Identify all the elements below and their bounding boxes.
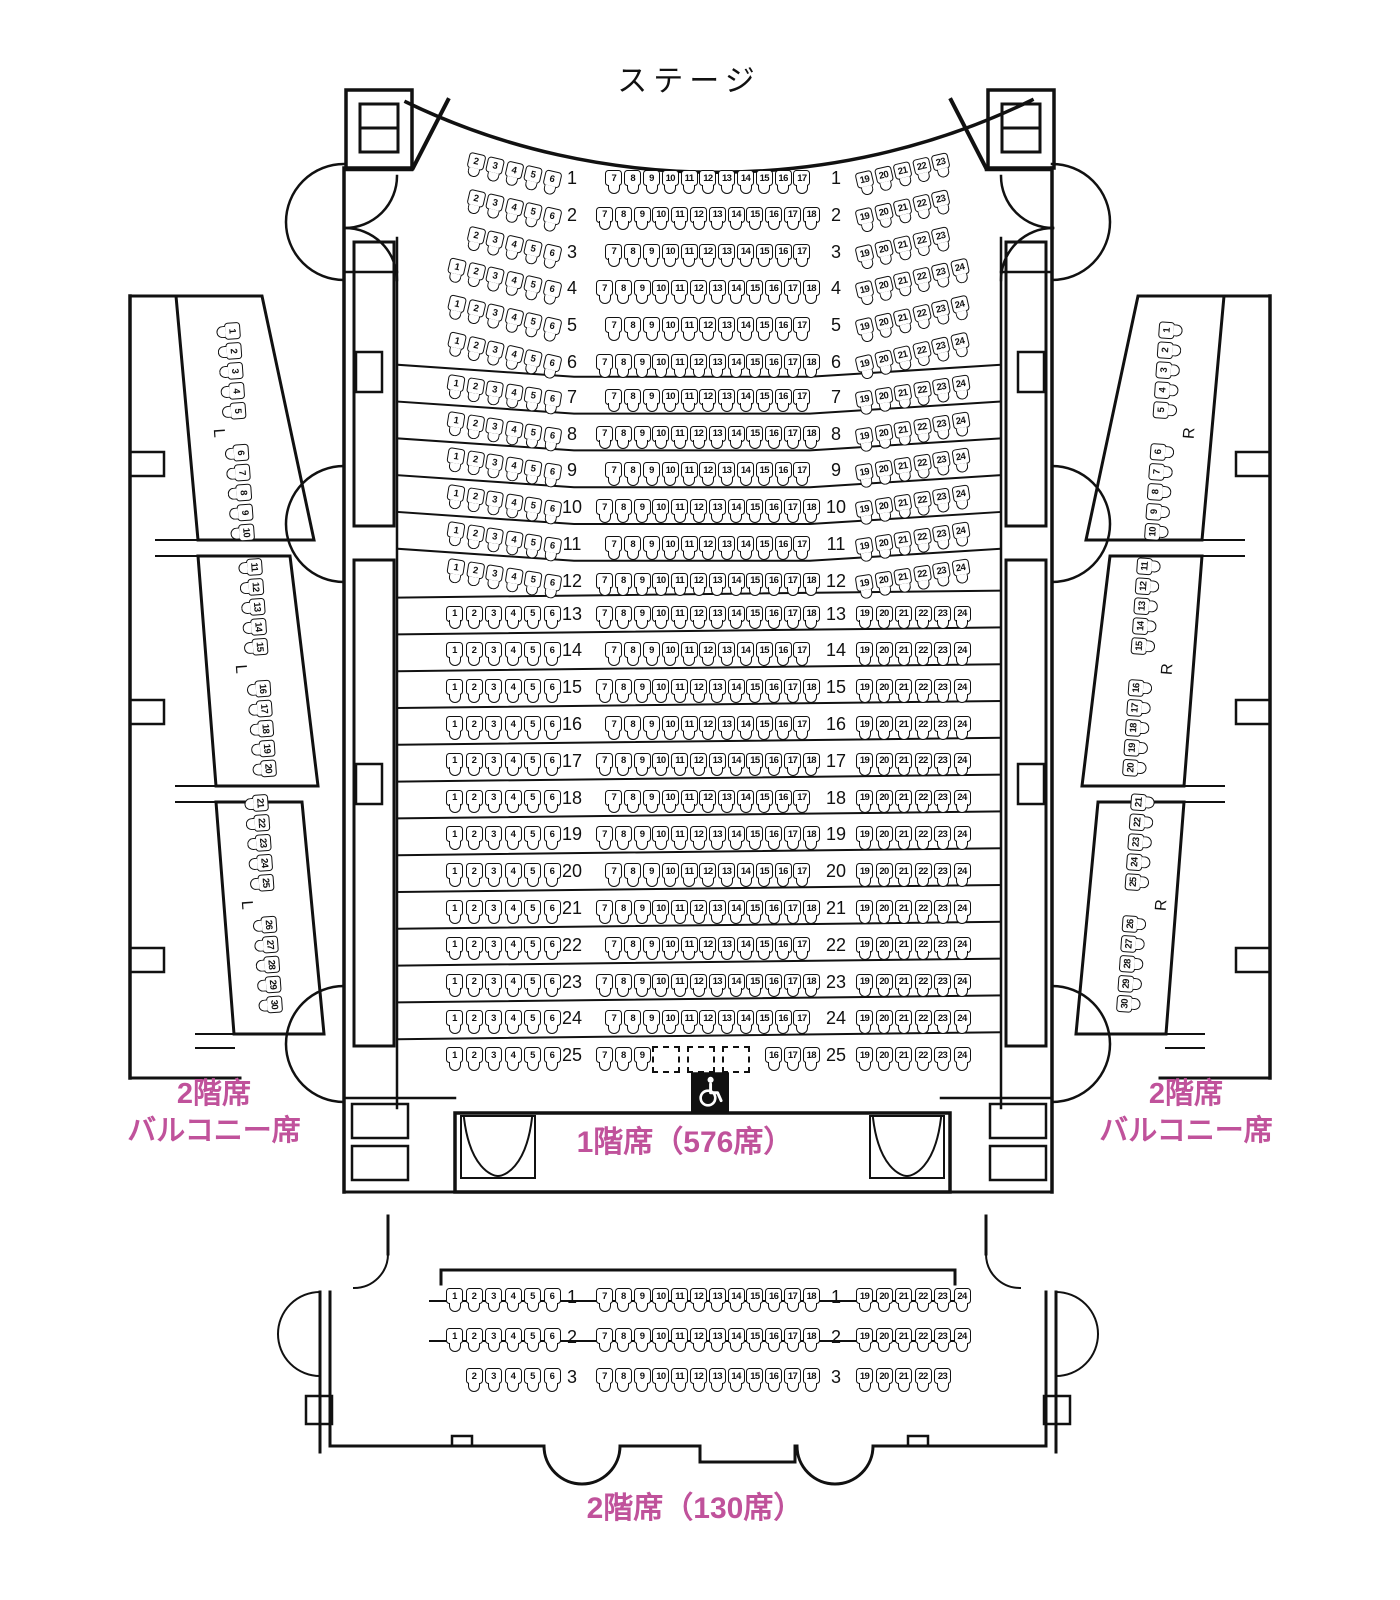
balcony-R-seat-25: 25 xyxy=(1124,873,1151,892)
balcony-right: 12345R6789101112131415R16171819202122232… xyxy=(0,0,1400,1600)
wheelchair-icon xyxy=(691,1072,729,1112)
balcony-R-seat-19: 19 xyxy=(1123,739,1150,758)
balcony-R-seat-22: 22 xyxy=(1129,813,1156,832)
balcony-R-seat-20: 20 xyxy=(1122,759,1149,778)
balcony-R-seat-2: 2 xyxy=(1157,341,1184,360)
balcony-R-section-1: 12345R678910 xyxy=(1144,317,1194,545)
balcony-R-seat-14: 14 xyxy=(1132,617,1159,636)
balcony-R-seat-1: 1 xyxy=(1158,321,1185,340)
balcony-R-seat-29: 29 xyxy=(1117,975,1144,994)
balcony-R-seat-23: 23 xyxy=(1127,833,1154,852)
balcony-R-letter-3: R xyxy=(1151,895,1172,916)
balcony-R-seat-16: 16 xyxy=(1128,679,1155,698)
balcony-R-seat-30: 30 xyxy=(1116,995,1143,1014)
balcony-R-seat-12: 12 xyxy=(1135,577,1162,596)
balcony-R-seat-18: 18 xyxy=(1125,719,1152,738)
balcony-R-seat-27: 27 xyxy=(1120,935,1147,954)
balcony-R-seat-17: 17 xyxy=(1126,699,1153,718)
balcony-R-seat-5: 5 xyxy=(1152,401,1179,420)
balcony-R-seat-11: 11 xyxy=(1136,557,1163,576)
balcony-R-seat-15: 15 xyxy=(1130,637,1157,656)
seating-chart: ステージ 2階席 バルコニー席 2階席 バルコニー席 1階席（576席） 2階席… xyxy=(0,0,1400,1600)
balcony-R-seat-6: 6 xyxy=(1150,443,1177,462)
balcony-R-seat-21: 21 xyxy=(1130,793,1157,812)
balcony-R-seat-3: 3 xyxy=(1155,361,1182,380)
balcony-R-seat-8: 8 xyxy=(1147,483,1174,502)
balcony-R-seat-26: 26 xyxy=(1122,915,1149,934)
balcony-R-seat-7: 7 xyxy=(1148,463,1175,482)
balcony-R-seat-28: 28 xyxy=(1119,955,1146,974)
balcony-R-seat-24: 24 xyxy=(1126,853,1153,872)
balcony-R-seat-10: 10 xyxy=(1144,523,1171,542)
balcony-R-seat-13: 13 xyxy=(1133,597,1160,616)
balcony-R-seat-4: 4 xyxy=(1154,381,1181,400)
balcony-R-section-2: 1112131415R1617181920 xyxy=(1122,553,1172,781)
balcony-R-letter-1: R xyxy=(1179,423,1200,444)
balcony-R-section-3: 2122232425R2627282930 xyxy=(1116,789,1166,1017)
balcony-R-letter-2: R xyxy=(1157,659,1178,680)
balcony-R-seat-9: 9 xyxy=(1145,503,1172,522)
